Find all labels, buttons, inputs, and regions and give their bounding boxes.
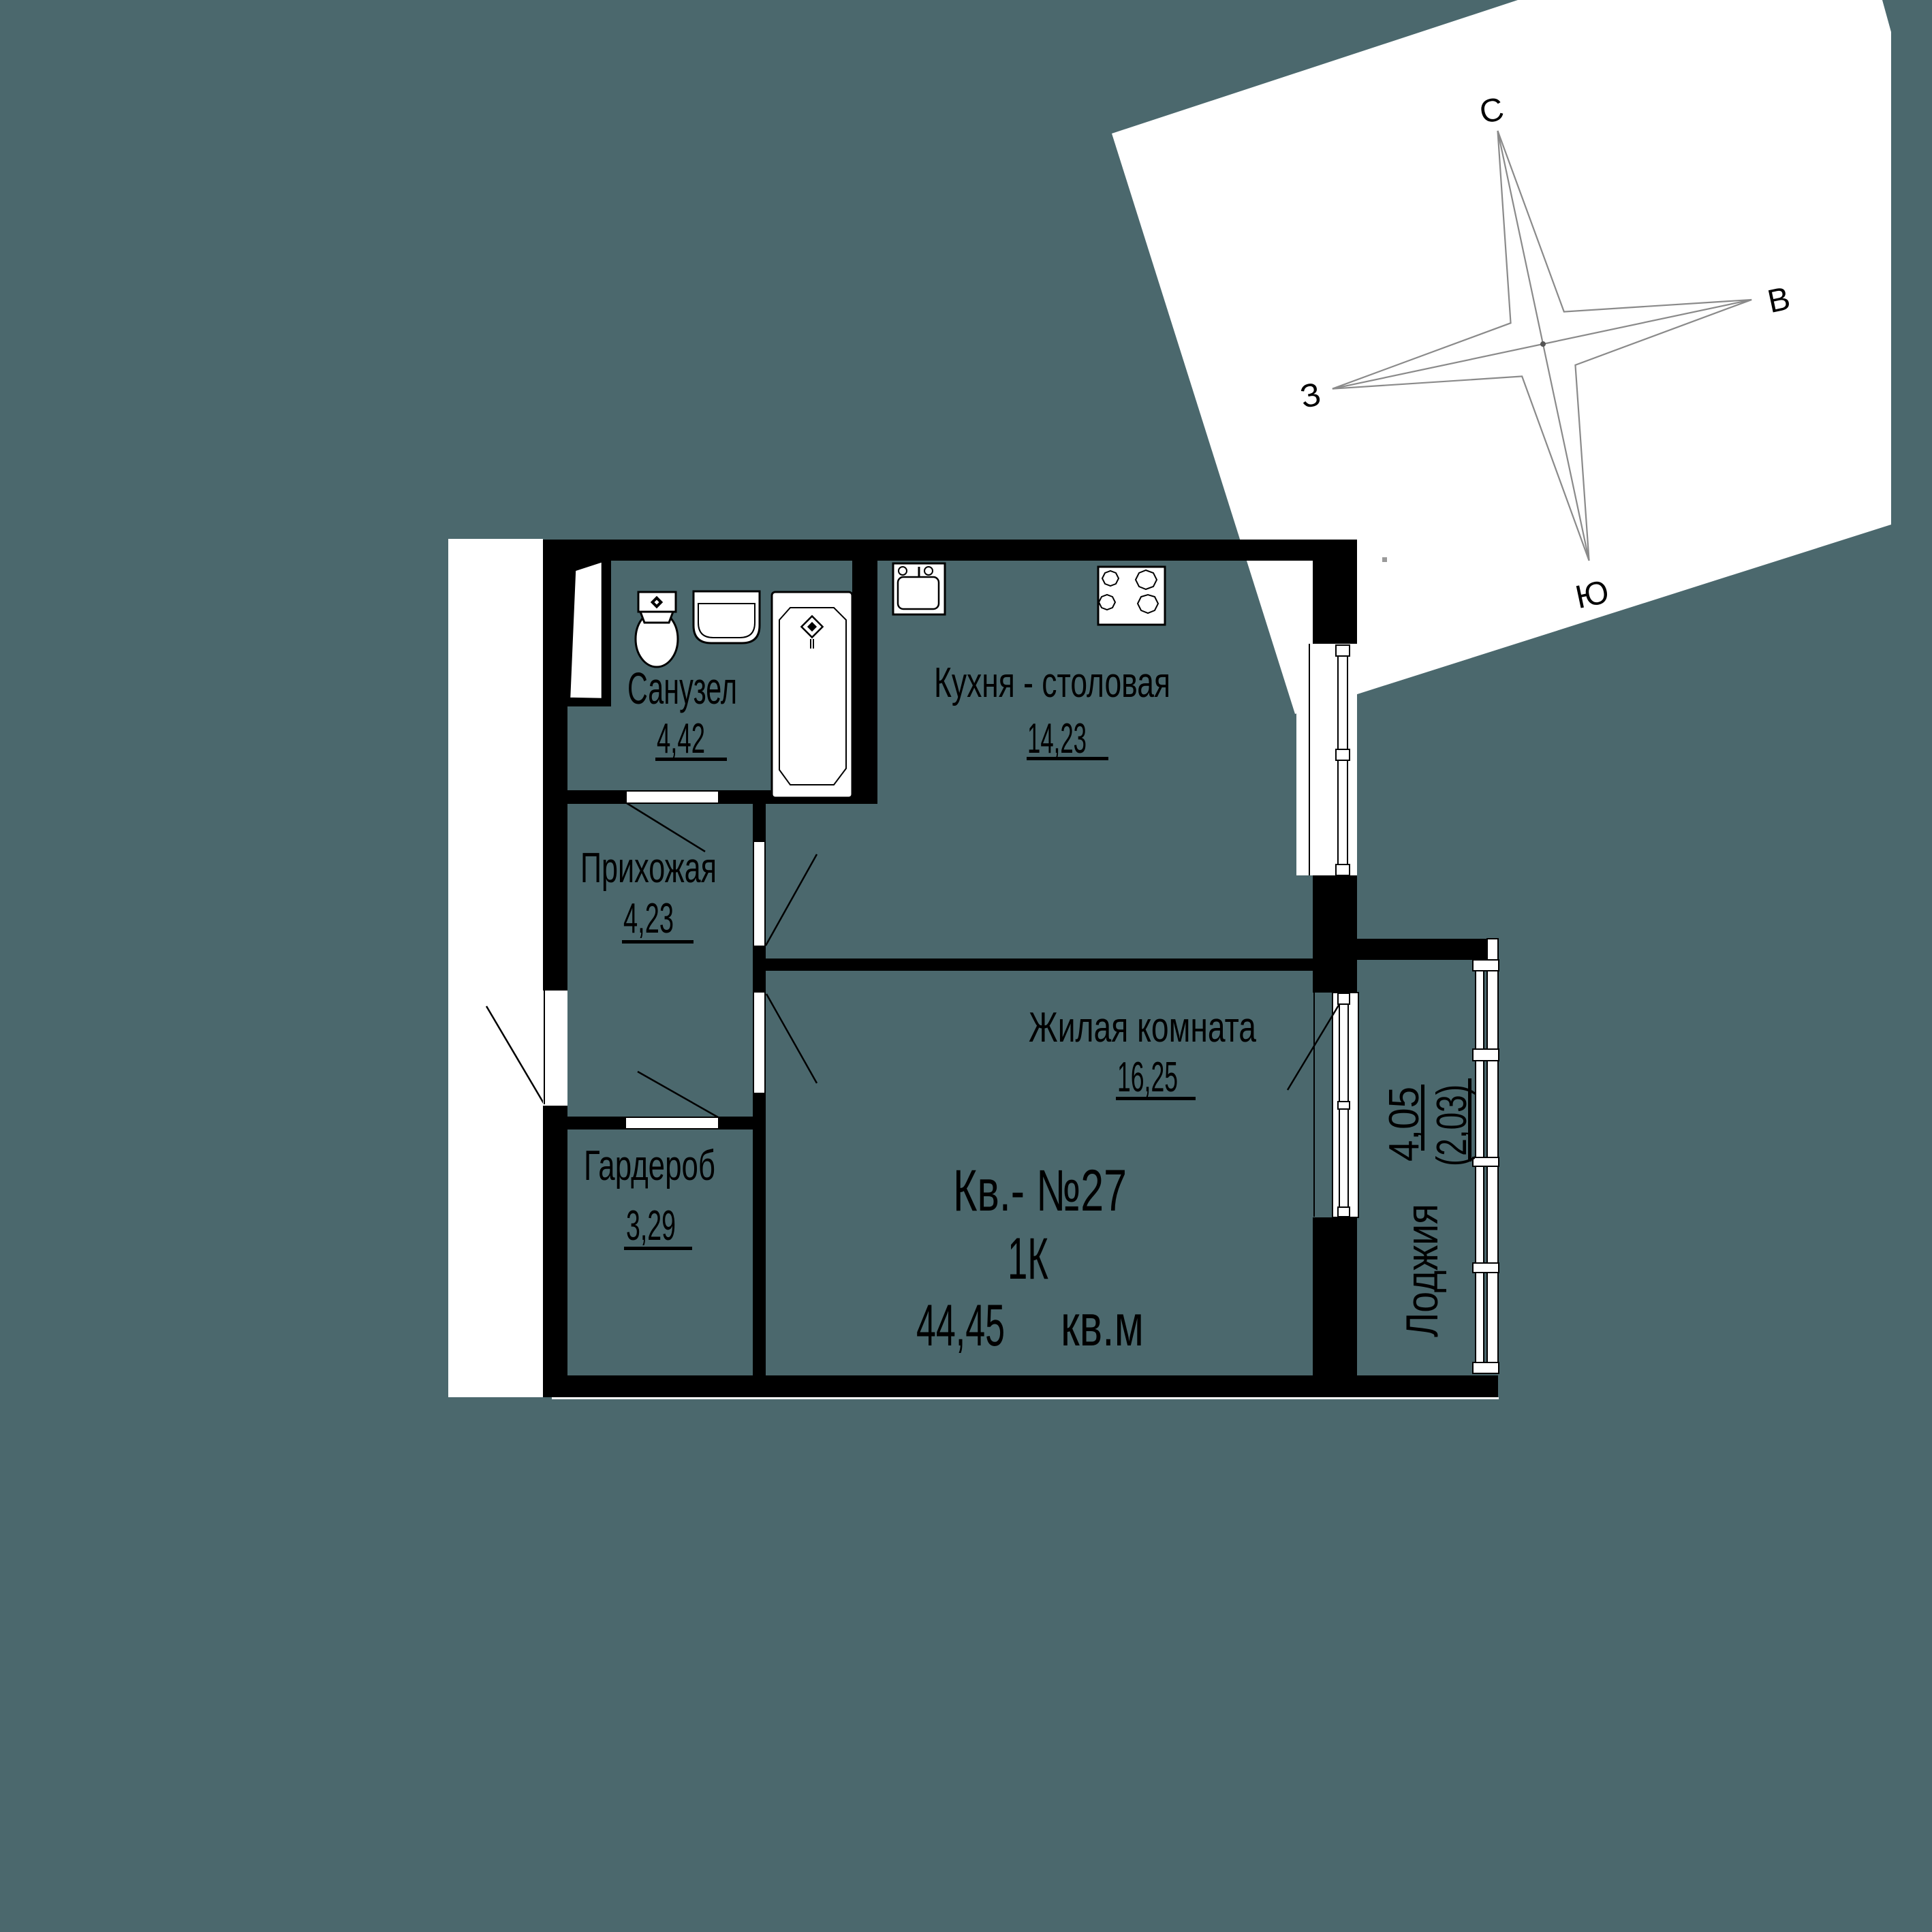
svg-text:1К: 1К bbox=[1008, 1226, 1048, 1292]
svg-text:44,45: 44,45 bbox=[916, 1293, 1005, 1358]
svg-text:Кухня - столовая: Кухня - столовая bbox=[934, 659, 1170, 706]
svg-text:Гардероб: Гардероб bbox=[584, 1142, 715, 1189]
svg-text:Жилая комната: Жилая комната bbox=[1029, 1004, 1256, 1051]
svg-text:Санузел: Санузел bbox=[627, 663, 737, 713]
svg-text:Кв.- №27: Кв.- №27 bbox=[953, 1158, 1127, 1224]
svg-text:Прихожая: Прихожая bbox=[580, 845, 717, 892]
svg-text:4,05: 4,05 bbox=[1381, 1087, 1428, 1162]
svg-text:Лоджия: Лоджия bbox=[1397, 1204, 1447, 1337]
svg-text:14,23: 14,23 bbox=[1027, 715, 1087, 762]
svg-text:4,23: 4,23 bbox=[623, 895, 674, 942]
svg-text:16,25: 16,25 bbox=[1117, 1054, 1178, 1101]
svg-text:3,29: 3,29 bbox=[626, 1202, 676, 1249]
svg-text:кв.м: кв.м bbox=[1061, 1293, 1144, 1358]
svg-text:4,42: 4,42 bbox=[657, 715, 705, 762]
